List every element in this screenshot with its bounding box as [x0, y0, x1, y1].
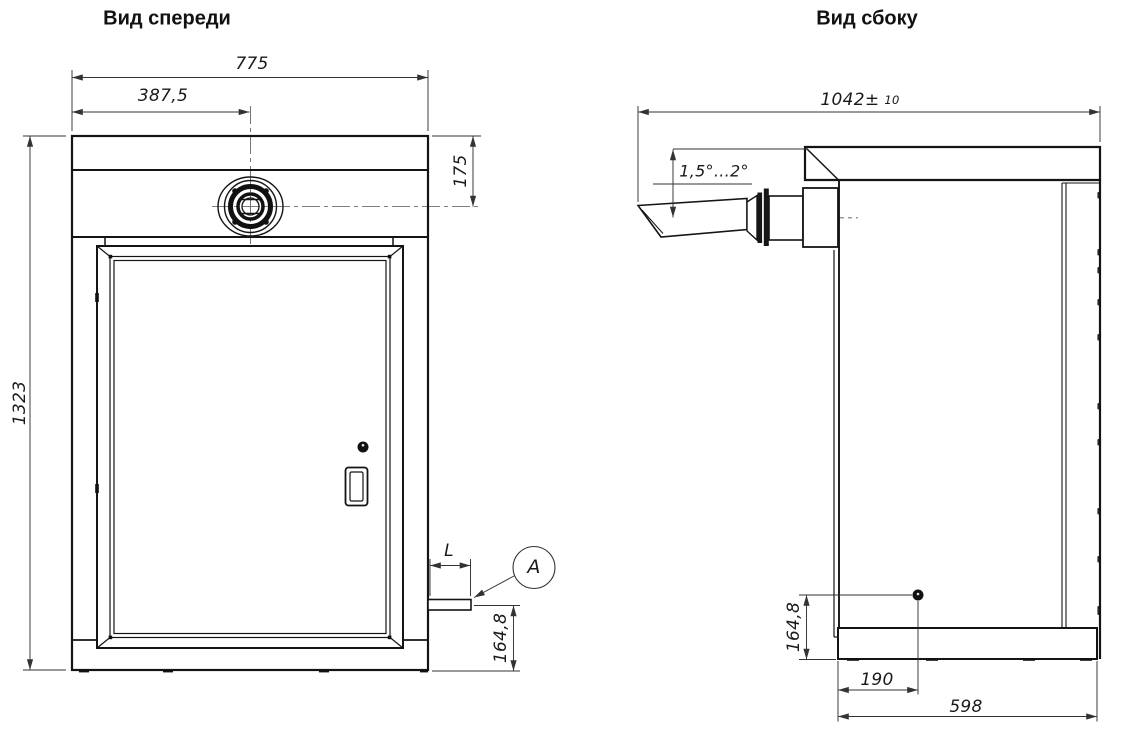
door-face-panel: [114, 261, 386, 634]
door-handle: [346, 468, 368, 506]
discharge-chute: [638, 196, 757, 241]
door-bevel-frame: [110, 257, 390, 638]
door-hinge-mark: [95, 293, 99, 302]
technical-drawing-page: Вид спереди Вид сбоку 775 387,5 1323 175…: [0, 0, 1122, 736]
dim-bolt-offset-label: 190: [860, 670, 893, 690]
drain-stub: [428, 600, 471, 611]
door-lock-knob: [358, 442, 369, 453]
front-dimensions: [23, 70, 555, 671]
depth-value: 1042±: [820, 90, 879, 110]
dim-stub-length-label: L: [444, 541, 454, 561]
front-view-title: Вид спереди: [103, 8, 231, 31]
dim-overall-height-label: 1323: [10, 381, 30, 425]
dim-drain-height-label: 164,8: [491, 613, 511, 663]
dim-base-depth-label: 598: [949, 697, 982, 717]
drawing-lineart: [0, 0, 1122, 736]
coupling-mount-block: [803, 188, 838, 247]
detail-A-leader: [474, 576, 514, 598]
side-view-title: Вид сбоку: [816, 8, 918, 31]
side-view: [638, 147, 1101, 661]
dim-inlet-offset-label: 387,5: [138, 86, 188, 106]
detail-A-label: A: [527, 556, 540, 578]
chute-cone: [747, 196, 757, 241]
dim-chute-angle-label: 1,5°...2°: [679, 162, 749, 181]
front-cabinet-outline: [72, 136, 428, 670]
dim-inlet-top-offset-label: 175: [451, 154, 471, 187]
front-view: [72, 106, 480, 672]
hose-coupling: [758, 188, 839, 247]
front-door: [95, 246, 403, 648]
dim-bolt-height-label: 164,8: [784, 602, 804, 652]
dim-overall-width-label: 775: [235, 54, 268, 74]
depth-tolerance: 10: [884, 93, 899, 107]
door-hinge-mark: [95, 484, 99, 493]
door-outer-frame: [97, 246, 403, 648]
side-top-band: [805, 147, 1100, 180]
coupling-pipe: [769, 196, 803, 240]
front-centerlines: [212, 106, 480, 244]
side-base: [838, 628, 1097, 659]
dim-overall-depth-label: 1042±10: [820, 90, 899, 110]
